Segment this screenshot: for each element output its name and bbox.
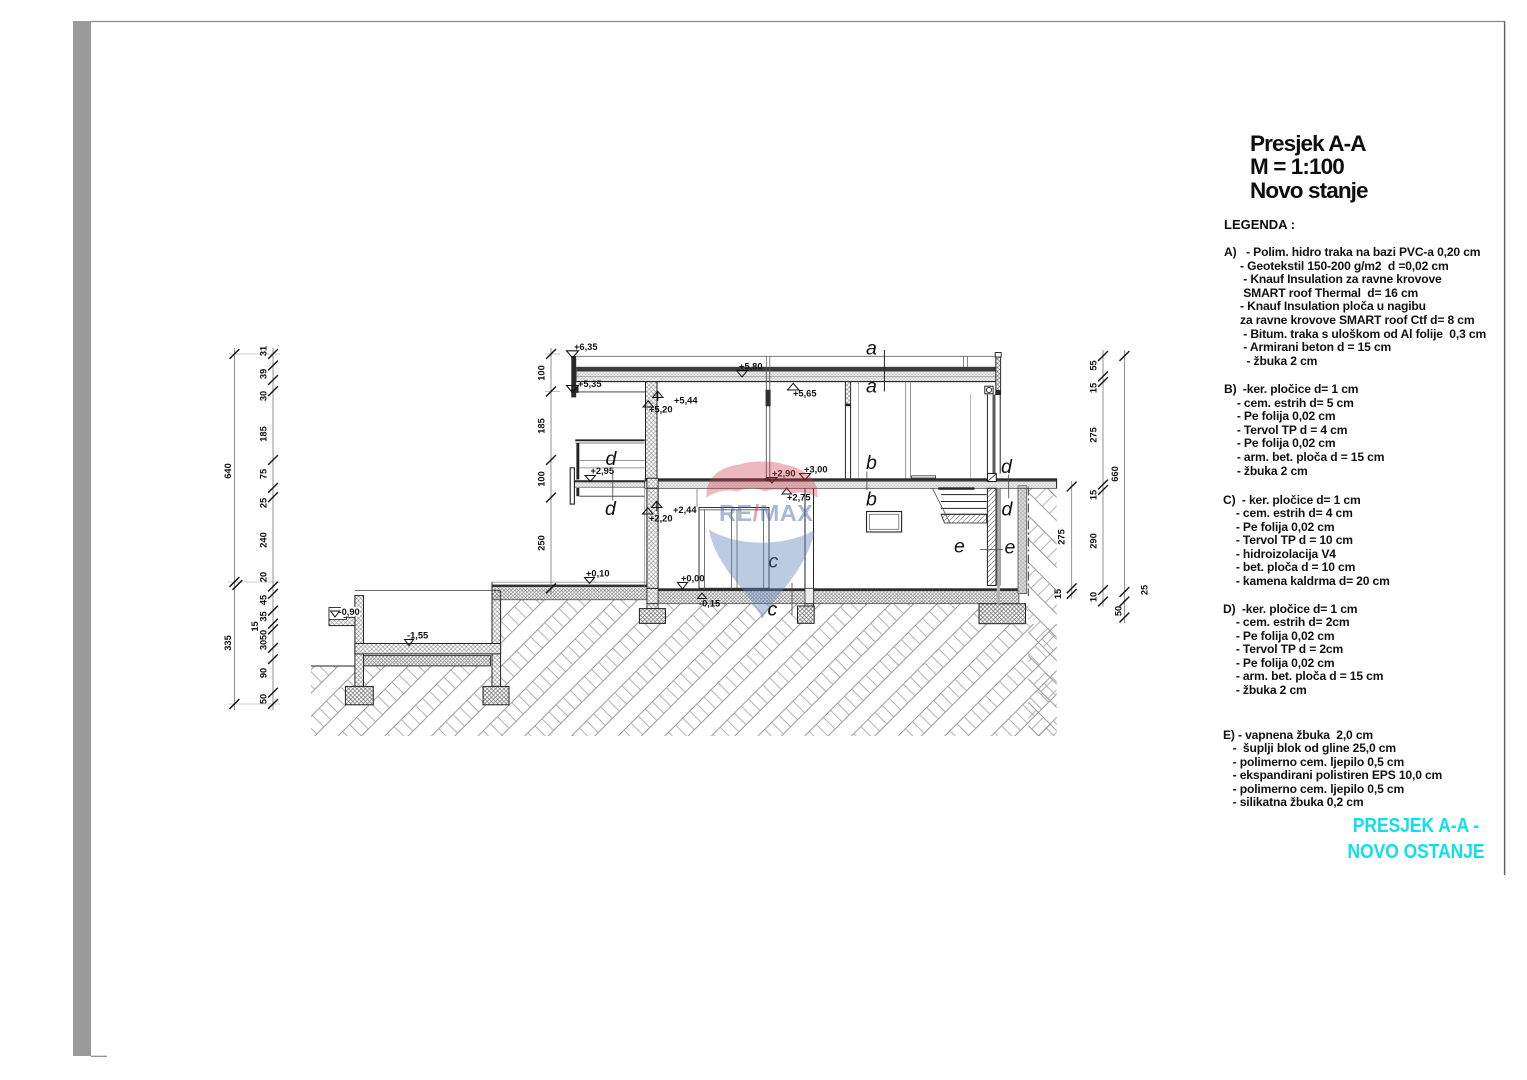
svg-text:275: 275	[1089, 427, 1099, 443]
svg-text:+5,20: +5,20	[649, 405, 673, 415]
svg-text:640: 640	[223, 463, 233, 479]
svg-text:240: 240	[259, 532, 269, 548]
svg-text:b: b	[866, 452, 877, 474]
svg-text:20: 20	[259, 572, 269, 582]
svg-text:50: 50	[1114, 606, 1124, 616]
svg-text:+5,65: +5,65	[793, 389, 817, 399]
svg-text:15: 15	[1089, 383, 1099, 393]
svg-text:250: 250	[537, 535, 547, 551]
svg-text:+5,44: +5,44	[674, 396, 698, 406]
svg-text:90: 90	[259, 668, 269, 678]
svg-text:45: 45	[259, 595, 269, 605]
svg-text:55: 55	[1089, 360, 1099, 370]
svg-text:d: d	[1001, 456, 1013, 478]
svg-text:+2,20: +2,20	[649, 514, 673, 524]
svg-text:15: 15	[1053, 589, 1063, 599]
svg-text:+5,35: +5,35	[578, 379, 602, 389]
svg-text:31: 31	[259, 346, 269, 356]
svg-text:30: 30	[259, 391, 269, 401]
svg-text:185: 185	[259, 426, 269, 442]
svg-text:660: 660	[1110, 466, 1120, 482]
svg-text:39: 39	[259, 369, 269, 379]
svg-text:10: 10	[1089, 592, 1099, 602]
svg-text:290: 290	[1089, 533, 1099, 549]
svg-text:d: d	[606, 448, 618, 470]
svg-text:RE/MAX: RE/MAX	[719, 500, 813, 526]
svg-text:50: 50	[259, 630, 269, 640]
svg-text:+2,44: +2,44	[673, 505, 697, 515]
svg-text:d: d	[605, 498, 617, 520]
svg-text:d: d	[1002, 499, 1014, 521]
svg-text:335: 335	[223, 635, 233, 651]
svg-text:50: 50	[259, 694, 269, 704]
svg-text:15: 15	[1089, 490, 1099, 500]
svg-text:35: 35	[259, 611, 269, 621]
svg-text:25: 25	[259, 498, 269, 508]
svg-text:a: a	[866, 338, 877, 360]
svg-text:275: 275	[1057, 529, 1067, 545]
svg-text:30: 30	[259, 640, 269, 650]
svg-text:e: e	[1005, 537, 1016, 559]
svg-text:a: a	[866, 376, 877, 398]
svg-text:100: 100	[537, 365, 547, 381]
svg-text:b: b	[866, 489, 877, 511]
svg-text:-0,90: -0,90	[339, 607, 360, 617]
svg-text:100: 100	[537, 471, 547, 487]
svg-text:75: 75	[259, 469, 269, 479]
svg-text:e: e	[954, 536, 965, 558]
svg-text:185: 185	[537, 418, 547, 434]
svg-text:-0,15: -0,15	[699, 599, 720, 609]
svg-text:25: 25	[1140, 585, 1150, 595]
